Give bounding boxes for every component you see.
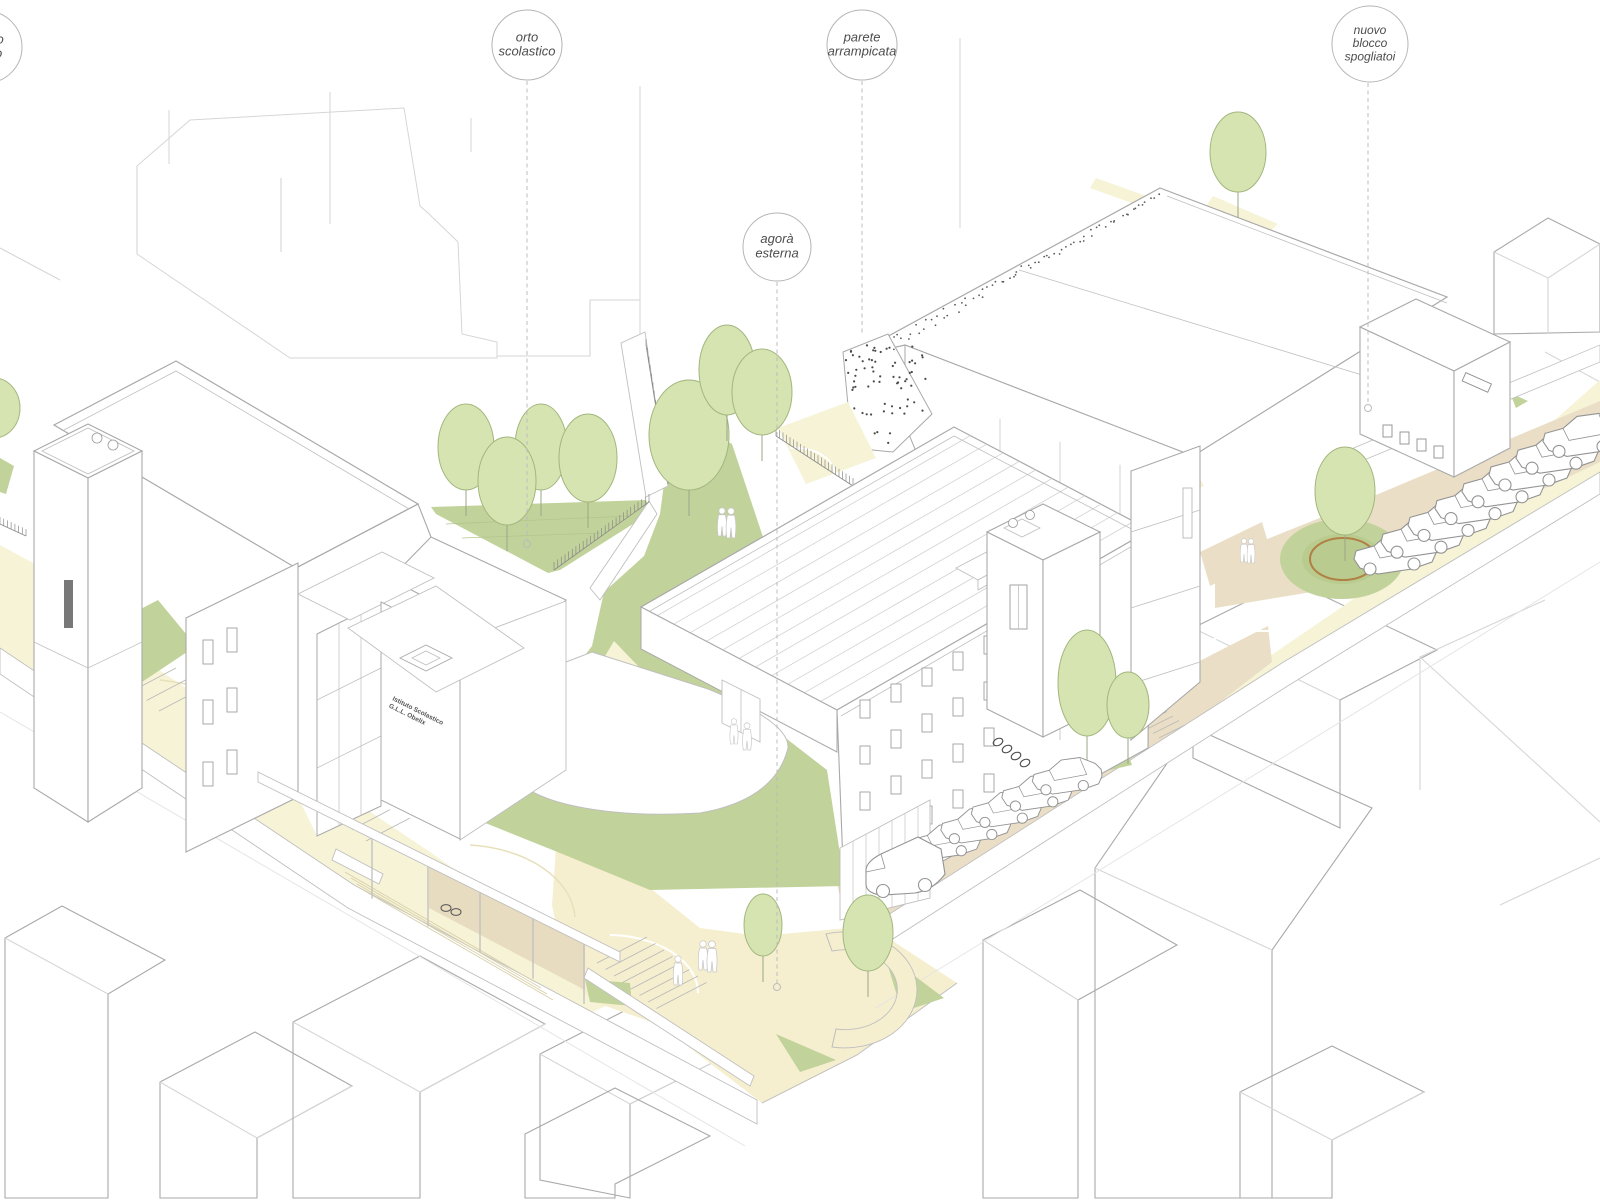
svg-text:agorà: agorà [760,231,793,246]
svg-text:spogliatoi: spogliatoi [1345,49,1396,63]
svg-text:parete: parete [843,29,881,44]
svg-text:nuovo: nuovo [1354,23,1387,37]
svg-text:scolastico: scolastico [498,44,555,59]
svg-text:nuovo: nuovo [0,31,4,46]
svg-text:orto: orto [516,29,538,44]
svg-text:parco: parco [0,46,2,61]
svg-text:esterna: esterna [755,246,798,261]
svg-text:arrampicata: arrampicata [828,44,897,59]
svg-text:blocco: blocco [1353,36,1388,50]
